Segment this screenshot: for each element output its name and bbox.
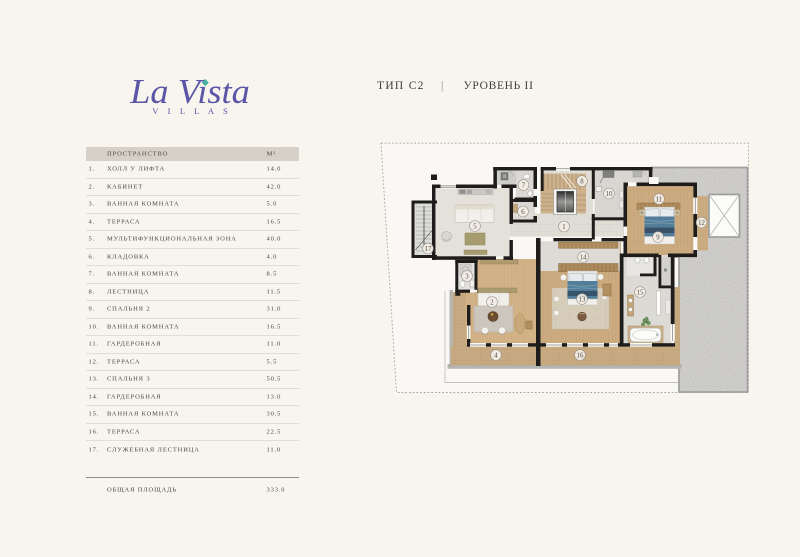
svg-text:10: 10 xyxy=(606,191,613,198)
svg-text:5: 5 xyxy=(473,223,477,230)
svg-text:3: 3 xyxy=(465,273,469,280)
svg-text:8: 8 xyxy=(580,178,584,185)
svg-text:12: 12 xyxy=(698,220,705,227)
svg-text:13: 13 xyxy=(579,296,586,303)
svg-text:16: 16 xyxy=(577,352,584,359)
svg-text:9: 9 xyxy=(656,234,660,241)
svg-text:4: 4 xyxy=(494,352,498,359)
svg-text:15: 15 xyxy=(637,289,644,296)
svg-text:17: 17 xyxy=(425,246,432,253)
svg-text:7: 7 xyxy=(522,182,526,189)
svg-text:14: 14 xyxy=(580,254,587,261)
svg-text:6: 6 xyxy=(521,209,525,216)
svg-text:11: 11 xyxy=(656,196,663,203)
svg-text:1: 1 xyxy=(562,224,565,231)
svg-text:2: 2 xyxy=(490,299,494,306)
